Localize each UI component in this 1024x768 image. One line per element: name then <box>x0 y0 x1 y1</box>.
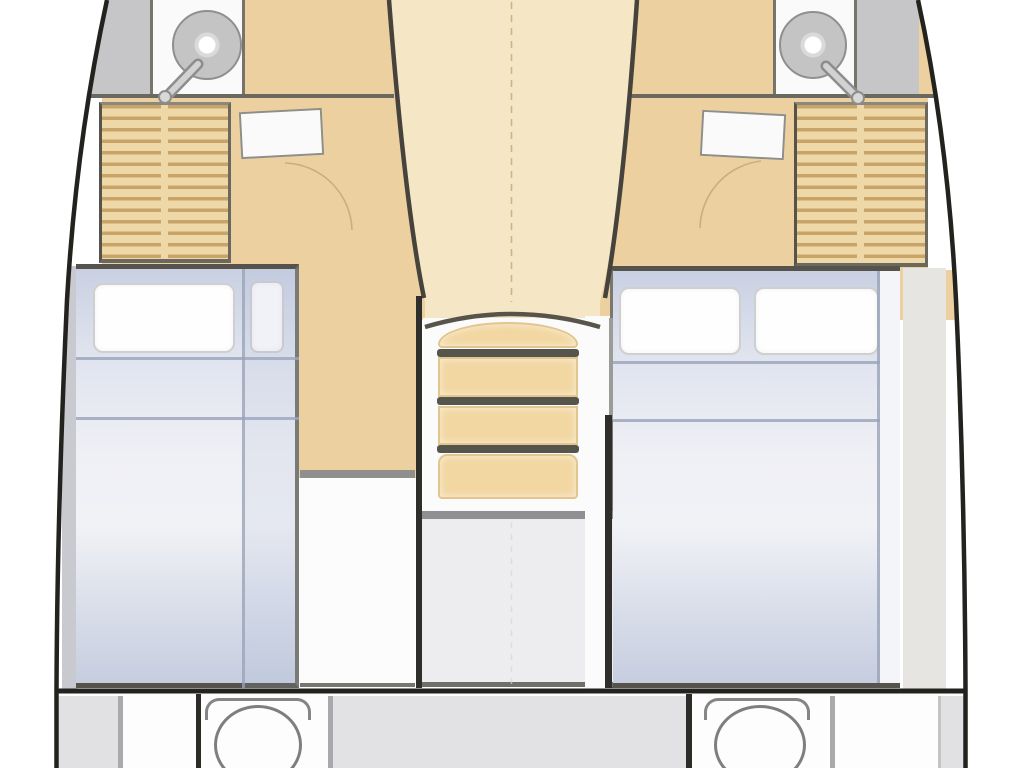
floor-plan-canvas <box>0 0 1024 768</box>
stair-riser <box>437 397 579 405</box>
transom-center-panel <box>333 696 686 768</box>
port-hull-side-band <box>62 266 77 690</box>
stair-riser <box>437 349 579 357</box>
mattress-seam <box>613 361 900 364</box>
starboard-shower-panel <box>855 0 919 97</box>
transom-panel <box>835 696 938 768</box>
mattress-shade <box>245 269 299 688</box>
starboard-wardrobe-louvers <box>794 102 928 267</box>
starboard-hull-side-band <box>903 268 946 690</box>
starboard-wc <box>692 696 830 768</box>
starboard-berth <box>610 266 900 688</box>
port-outboard-strip <box>66 97 102 267</box>
starboard-pillow-1 <box>619 287 741 355</box>
transom-panel <box>58 696 118 768</box>
port-corridor-floor <box>297 300 417 478</box>
starboard-pillow-2 <box>754 287 879 355</box>
mattress-seam <box>613 419 900 422</box>
starboard-passage-strip <box>585 316 610 690</box>
starboard-sink-icon <box>779 11 847 79</box>
port-sink-icon <box>172 10 242 80</box>
port-aft-compartment <box>300 470 415 687</box>
stair-riser <box>437 445 579 453</box>
starboard-bulkhead-line <box>631 94 947 98</box>
port-bulkhead-line <box>66 94 394 98</box>
stair-tread-2 <box>438 357 578 397</box>
port-wc <box>201 696 327 768</box>
port-berth <box>76 264 299 688</box>
stair-tread-4 <box>438 454 578 499</box>
port-shower-panel <box>82 0 152 95</box>
under-stair-compartment <box>417 511 613 687</box>
stair-tread-3 <box>438 406 578 445</box>
transom-panel <box>941 696 964 768</box>
starboard-shelf <box>700 110 786 160</box>
mattress-edge-strip <box>880 271 900 683</box>
transom-divider <box>118 696 123 768</box>
port-shelf <box>239 108 324 159</box>
port-wardrobe-louvers <box>99 102 231 263</box>
starboard-outboard-strip <box>928 97 956 270</box>
port-pillow <box>93 283 235 353</box>
